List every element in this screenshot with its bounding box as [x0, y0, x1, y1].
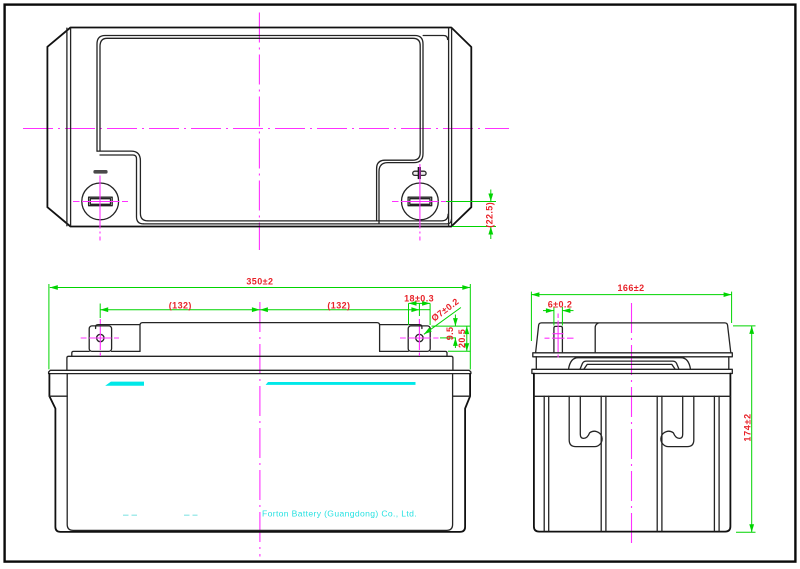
svg-text:(132): (132) [327, 300, 350, 310]
svg-text:166±2: 166±2 [618, 283, 645, 293]
svg-text:20.5: 20.5 [457, 329, 467, 348]
svg-text:174±2: 174±2 [743, 413, 753, 441]
svg-text:Forton Battery (Guangdong) Co.: Forton Battery (Guangdong) Co., Ltd. [262, 509, 417, 519]
svg-text:6±0.2: 6±0.2 [548, 299, 572, 309]
svg-text:(22.5): (22.5) [484, 202, 494, 228]
svg-text:18±0.3: 18±0.3 [404, 294, 434, 304]
svg-text:(132): (132) [169, 300, 192, 310]
svg-text:9.5: 9.5 [445, 327, 455, 341]
svg-text:350±2: 350±2 [246, 277, 273, 287]
